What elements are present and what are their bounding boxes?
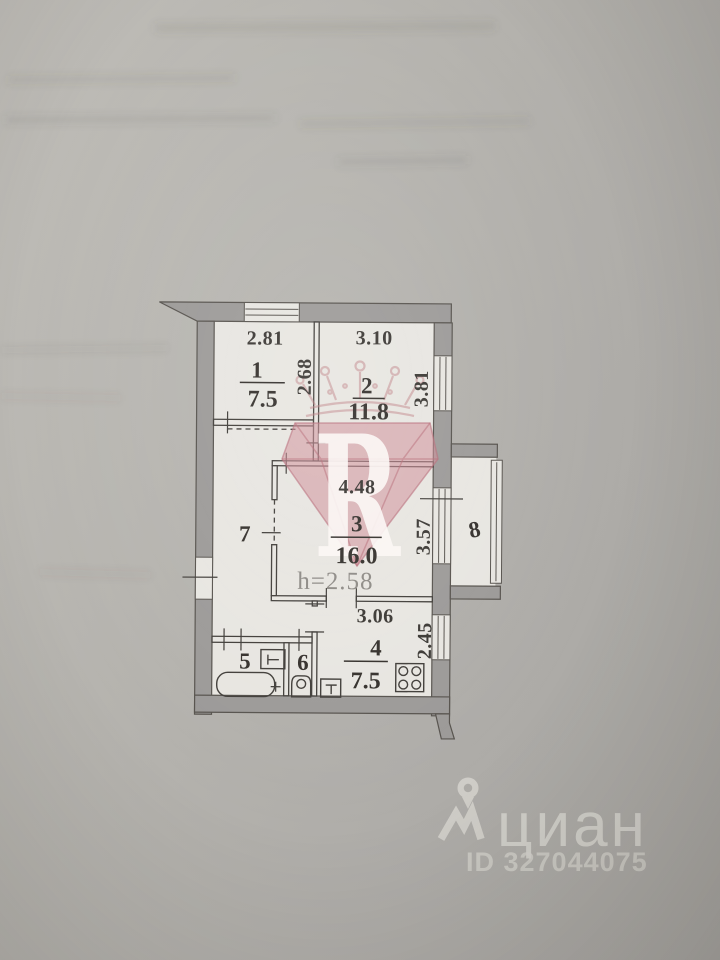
wall-bottom-tab [435, 714, 454, 739]
room1-area: 7.5 [248, 386, 278, 412]
partition-room3-left-upper [272, 466, 277, 500]
dim-room3-depth: 3.57 [413, 518, 435, 555]
dim-room4-depth: 2.45 [414, 622, 436, 659]
balcony-wall-bottom [450, 586, 500, 599]
room4-area: 7.5 [351, 668, 381, 694]
wall-top [159, 302, 451, 323]
window-room1-top [244, 302, 299, 321]
room5-number: 5 [239, 648, 251, 673]
photographed-floorplan-page: R 2.81 3.10 4.48 3.06 2.68 3.81 3.57 2.4… [0, 0, 720, 960]
dim-room4-width: 3.06 [357, 605, 394, 627]
balcony-wall-top [451, 444, 497, 457]
floorplan-canvas: R 2.81 3.10 4.48 3.06 2.68 3.81 3.57 2.4… [0, 0, 720, 960]
cian-branding: циан ID 327044075 [441, 778, 648, 878]
room2-area: 11.8 [348, 399, 389, 425]
wall-left [195, 321, 215, 714]
room6-number: 6 [297, 650, 309, 675]
partition-bathroom-top [212, 636, 312, 643]
partition-room3-bottom-left [271, 596, 326, 601]
room3-ceiling-height: h=2.58 [297, 568, 374, 596]
dim-room2-depth: 3.81 [411, 370, 433, 407]
partition-room3-left-lower [271, 545, 276, 596]
listing-id: ID 327044075 [466, 847, 648, 877]
room4-number: 4 [370, 635, 382, 660]
wall-left-opening [195, 557, 212, 599]
dim-room2-width: 3.10 [356, 327, 393, 349]
room3-area: 16.0 [336, 543, 378, 569]
room1-number: 1 [251, 358, 263, 383]
room2-number: 2 [361, 373, 373, 398]
dim-room1-depth: 2.68 [294, 358, 316, 395]
window-room2-right [434, 356, 452, 411]
wall-bottom [195, 695, 450, 714]
room3-number: 3 [351, 511, 363, 536]
cian-pin-mountain-icon [441, 778, 481, 840]
dim-room3-width: 4.48 [339, 476, 376, 498]
partition-room3-bottom-right [356, 596, 432, 602]
dim-room1-width: 2.81 [247, 327, 284, 349]
room7-number: 7 [239, 521, 251, 546]
